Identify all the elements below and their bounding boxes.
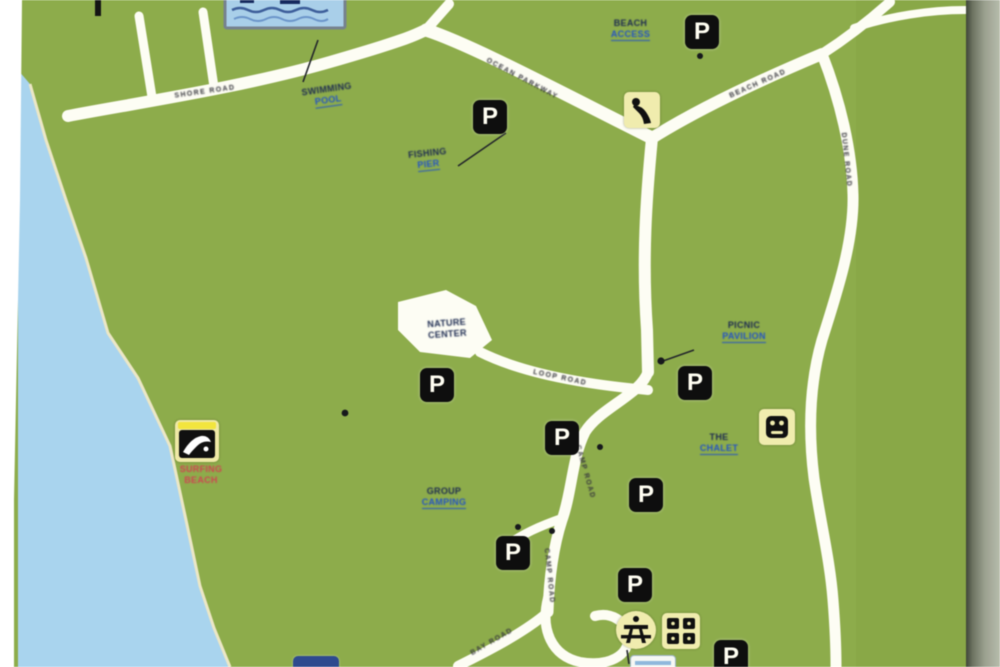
cutoff-sign-blue [293,656,339,667]
label-the-chalet-line1: THE [674,432,764,443]
pool [225,0,345,28]
playground-icon [662,613,700,649]
parking-icon: P [629,478,663,512]
screenshot: SHORE ROAD OCEAN PARKWAY BEACH ROAD DUNE… [0,0,1000,667]
parking-icon: P [618,568,652,602]
parking-icon: P [420,368,454,402]
label-group-camping-link[interactable]: CAMPING [422,498,467,510]
label-picnic-pavilion-line1: PICNIC [696,320,792,331]
picnic-area-icon-glyph [616,611,656,649]
label-the-chalet-link[interactable]: CHALET [700,444,738,456]
parking-icon: P [685,15,719,49]
parking-icon: P [714,640,748,667]
label-surfing-beach-line1: SURFING [163,464,239,475]
parking-icon: P [678,366,712,400]
bus-icon [759,409,795,445]
label-group-camping: GROUP CAMPING [398,486,490,509]
cutoff-sign-stripe [635,661,671,665]
parking-icon: P [545,421,579,455]
label-beach-access-link[interactable]: ACCESS [611,30,650,42]
label-picnic-pavilion-link[interactable]: PAVILION [722,332,766,344]
hang-glider-icon [175,420,219,462]
label-beach-access: BEACH ACCESS [588,18,673,41]
label-group-camping-line1: GROUP [398,486,490,497]
flagpole-mark [95,0,101,16]
land-shade [856,0,968,667]
bus-icon-glyph [759,409,795,445]
road-plaza-connector [480,352,648,390]
label-surfing-beach-line2: BEACH [163,475,239,486]
label-fishing-pier-link[interactable]: PIER [417,158,440,172]
road-stub-pool-west [139,16,152,97]
label-the-chalet: THE CHALET [674,432,764,455]
playground-icon-glyph [662,613,700,649]
parking-icon: P [473,100,507,134]
park-map: SHORE ROAD OCEAN PARKWAY BEACH ROAD DUNE… [0,0,1000,667]
road-coast [68,30,426,116]
label-beach-access-line1: BEACH [588,18,673,29]
hang-glider-icon-glyph [175,420,219,462]
cutoff-sign-white [630,655,676,667]
fishing-icon [624,92,660,128]
label-picnic-pavilion: PICNIC PAVILION [696,320,792,343]
road-stub-pool-east [203,12,214,87]
picnic-area-icon [616,611,656,649]
fishing-icon-glyph [624,92,660,128]
road-central-upper [645,138,652,372]
parking-icon: P [496,536,530,570]
page-edge-band [966,0,1000,667]
label-surfing-beach: SURFING BEACH [163,464,239,485]
